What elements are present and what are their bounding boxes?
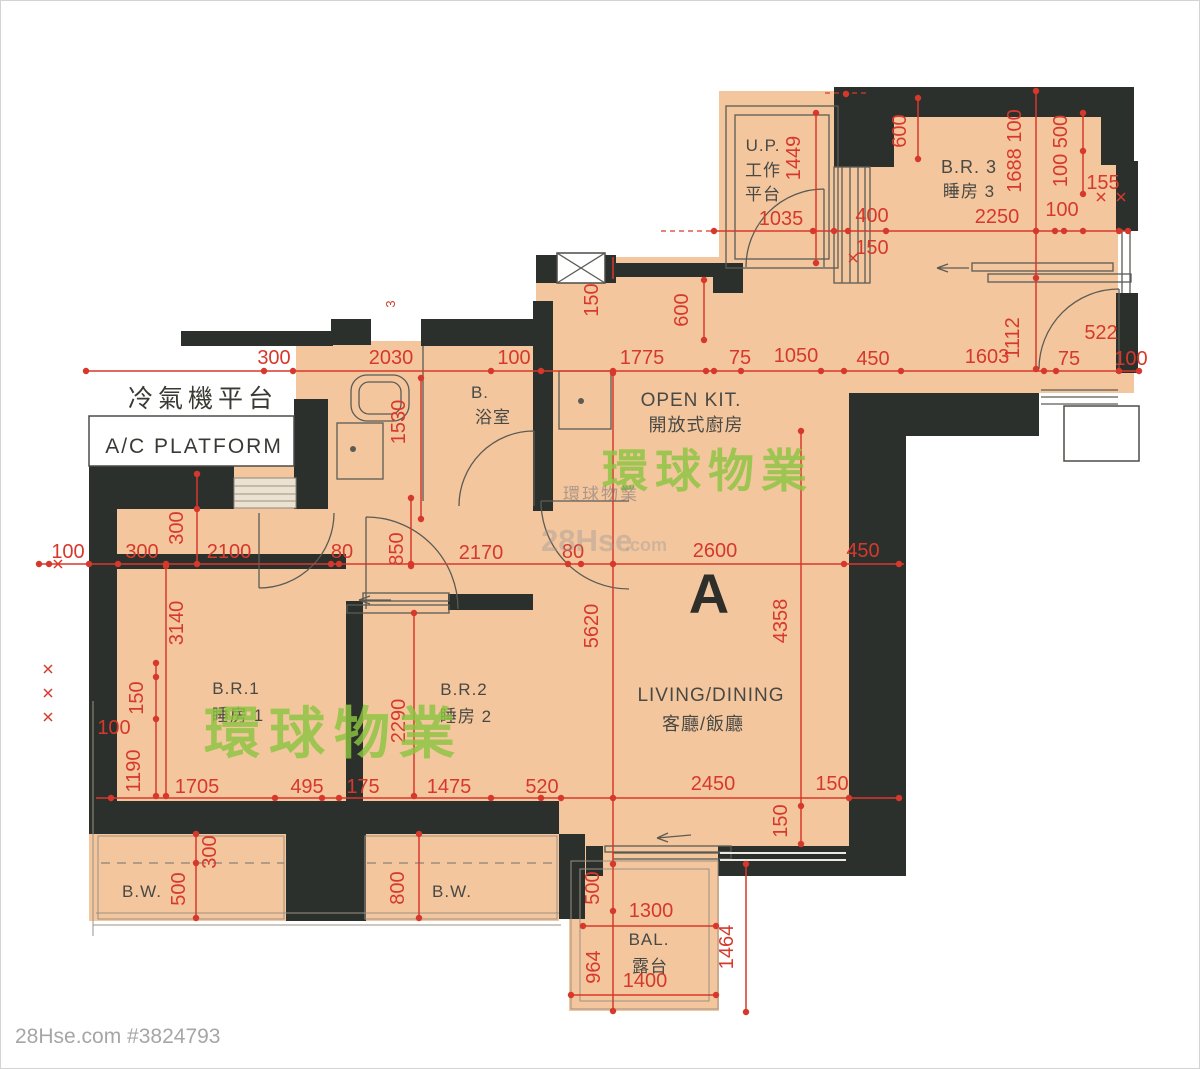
room-label-br3: B.R. 3 bbox=[941, 157, 997, 177]
dim-label: 1050 bbox=[774, 345, 819, 367]
dim-tick bbox=[411, 793, 417, 799]
dim-cross-tick bbox=[44, 713, 52, 721]
dim-label: 500 bbox=[582, 871, 604, 904]
dim-tick bbox=[1080, 228, 1086, 234]
dim-tick bbox=[153, 660, 159, 666]
dim-tick bbox=[610, 795, 616, 801]
dim-tick bbox=[610, 908, 616, 914]
dim-label: 80 bbox=[331, 541, 353, 563]
dim-tick bbox=[1033, 228, 1039, 234]
dim-label: 100 bbox=[497, 347, 530, 369]
dim-label: 150 bbox=[770, 804, 792, 837]
dim-tick bbox=[898, 368, 904, 374]
watermark-brand-small: 環球物業 bbox=[563, 485, 639, 504]
dim-tick bbox=[915, 156, 921, 162]
room-label-up: U.P. bbox=[746, 136, 781, 155]
dim-tick bbox=[883, 228, 889, 234]
dim-tick bbox=[163, 793, 169, 799]
room-label-br2: B.R.2 bbox=[440, 680, 488, 699]
dim-tick bbox=[193, 915, 199, 921]
dim-label: 2600 bbox=[693, 540, 738, 562]
dim-label: 2100 bbox=[207, 541, 252, 563]
dim-tick bbox=[610, 1008, 616, 1014]
dim-tick bbox=[418, 516, 424, 522]
dim-tick bbox=[843, 91, 849, 97]
dim-tick bbox=[1033, 366, 1039, 372]
dim-label: 100 bbox=[1114, 348, 1147, 370]
room-label-balcony: 露台 bbox=[632, 957, 668, 976]
dim-label: 800 bbox=[387, 871, 409, 904]
dim-tick bbox=[711, 228, 717, 234]
room-label-br1: B.R.1 bbox=[212, 679, 260, 698]
dim-tick bbox=[701, 337, 707, 343]
dim-tick bbox=[408, 495, 414, 501]
dim-label: 75 bbox=[1058, 348, 1080, 370]
dim-tick bbox=[36, 561, 42, 567]
room-label-bw-left: B.W. bbox=[122, 882, 162, 901]
room-label-living: 客廳/飯廳 bbox=[662, 714, 744, 734]
dim-tick bbox=[488, 368, 494, 374]
dim-label: 1190 bbox=[123, 749, 145, 792]
dim-tick bbox=[1125, 228, 1131, 234]
footer-listing-id: 28Hse.com #3824793 bbox=[15, 1025, 220, 1048]
dim-tick bbox=[153, 793, 159, 799]
dim-tick bbox=[194, 471, 200, 477]
dim-label: 100 bbox=[1045, 199, 1078, 221]
dim-tick bbox=[408, 563, 414, 569]
dim-tick bbox=[810, 228, 816, 234]
dim-label: 2170 bbox=[459, 542, 504, 564]
dim-tick bbox=[108, 795, 114, 801]
dim-label: 1475 bbox=[427, 776, 472, 798]
dim-cross-tick bbox=[44, 665, 52, 673]
dim-tick bbox=[418, 375, 424, 381]
dim-tick bbox=[194, 506, 200, 512]
dim-label: 150 bbox=[855, 237, 888, 259]
dim-tick bbox=[1033, 88, 1039, 94]
dim-tick bbox=[845, 228, 851, 234]
watermark-site-tld: .com bbox=[625, 535, 667, 555]
floorplan-page: 3002030100177575105045016037510011125221… bbox=[0, 0, 1200, 1069]
room-label-br3: 睡房 3 bbox=[943, 182, 995, 201]
dim-label: 1688 100 bbox=[1004, 109, 1026, 192]
dim-tick bbox=[743, 1009, 749, 1015]
dim-tick bbox=[115, 561, 121, 567]
dim-tick bbox=[538, 368, 544, 374]
dim-tick bbox=[1041, 368, 1047, 374]
dim-label: 1035 bbox=[759, 208, 804, 230]
dim-tick bbox=[798, 428, 804, 434]
room-label-up: 工作 bbox=[745, 161, 781, 180]
dim-tick bbox=[896, 561, 902, 567]
dim-label: 150 bbox=[815, 773, 848, 795]
dim-label: 600 bbox=[671, 293, 693, 326]
dim-tick bbox=[1033, 275, 1039, 281]
room-label-bath: B. bbox=[471, 383, 489, 402]
dim-tick bbox=[703, 368, 709, 374]
dim-tick bbox=[1116, 228, 1122, 234]
dim-tick bbox=[1080, 148, 1086, 154]
dim-tick bbox=[416, 831, 422, 837]
dim-label: 1705 bbox=[175, 776, 220, 798]
room-label-bath: 浴室 bbox=[475, 408, 511, 427]
dim-tick bbox=[610, 861, 616, 867]
dim-tick bbox=[290, 368, 296, 374]
room-label-balcony: BAL. bbox=[629, 930, 670, 949]
unit-label: A bbox=[689, 562, 729, 625]
dim-tick bbox=[153, 716, 159, 722]
dim-label: 450 bbox=[856, 348, 889, 370]
dim-tick bbox=[610, 561, 616, 567]
dim-tick bbox=[1080, 191, 1086, 197]
dim-tick bbox=[841, 368, 847, 374]
dim-tick bbox=[610, 370, 616, 376]
dim-label: 3140 bbox=[166, 601, 188, 646]
dim-tick bbox=[743, 861, 749, 867]
dim-label: 520 bbox=[525, 776, 558, 798]
dim-label: 1449 bbox=[783, 136, 805, 181]
dim-tick bbox=[813, 260, 819, 266]
dim-label: 500 bbox=[168, 872, 190, 905]
dim-tick bbox=[1061, 228, 1067, 234]
dim-tick bbox=[488, 795, 494, 801]
dim-label: 5620 bbox=[581, 604, 603, 649]
dim-label: 850 bbox=[386, 532, 408, 565]
dim-label: 100 500 bbox=[1050, 115, 1072, 187]
dim-label: 100 bbox=[97, 717, 130, 739]
dim-tick bbox=[896, 795, 902, 801]
dim-label: 300 bbox=[166, 511, 188, 544]
dim-label: 300 bbox=[125, 541, 158, 563]
room-label-living: LIVING/DINING bbox=[637, 685, 784, 706]
floor-plan-svg: 3002030100177575105045016037510011125221… bbox=[1, 1, 1199, 1068]
dim-label: 75 bbox=[729, 347, 751, 369]
dim-tick bbox=[272, 795, 278, 801]
dim-tick bbox=[336, 795, 342, 801]
dim-label: 1530 bbox=[388, 400, 410, 445]
dim-label: 3 bbox=[383, 300, 398, 307]
dim-tick bbox=[915, 95, 921, 101]
dim-tick bbox=[411, 610, 417, 616]
dim-tick bbox=[798, 803, 804, 809]
dim-tick bbox=[713, 992, 719, 998]
dim-label: 1775 bbox=[620, 347, 665, 369]
dim-tick bbox=[1052, 228, 1058, 234]
dim-label: 300 bbox=[199, 835, 221, 868]
dim-tick bbox=[153, 674, 159, 680]
dim-label: 4358 bbox=[770, 599, 792, 644]
dim-tick bbox=[818, 368, 824, 374]
dim-label: 600 bbox=[889, 114, 911, 147]
dim-tick bbox=[831, 228, 837, 234]
dim-tick bbox=[813, 110, 819, 116]
dim-label: 1112 bbox=[1002, 317, 1024, 359]
room-label-kitchen: 開放式廚房 bbox=[649, 414, 744, 435]
dim-tick bbox=[86, 561, 92, 567]
watermark-brand: 環球物業 bbox=[204, 702, 464, 765]
dim-label: 175 bbox=[346, 776, 379, 798]
room-label-kitchen: OPEN KIT. bbox=[641, 390, 742, 411]
window-sill bbox=[234, 478, 296, 508]
dim-cross-tick bbox=[44, 689, 52, 697]
watermark-site: 28Hse bbox=[541, 523, 632, 558]
dim-label: 964 bbox=[583, 950, 605, 983]
room-label-ac: A/C PLATFORM bbox=[105, 435, 283, 458]
dim-tick bbox=[798, 841, 804, 847]
room-label-bw-right: B.W. bbox=[432, 882, 472, 901]
dim-tick bbox=[194, 561, 200, 567]
dim-label: 495 bbox=[290, 776, 323, 798]
dim-label: 150 bbox=[126, 681, 148, 714]
dim-label: 2030 bbox=[369, 347, 414, 369]
dim-label: 2450 bbox=[691, 773, 736, 795]
dim-label: 100 bbox=[51, 541, 84, 563]
dim-tick bbox=[580, 923, 586, 929]
dim-label: 1300 bbox=[629, 900, 674, 922]
room-label-up: 平台 bbox=[745, 185, 781, 204]
dim-tick bbox=[163, 563, 169, 569]
dim-label: 522 bbox=[1084, 322, 1117, 344]
dim-tick bbox=[846, 795, 852, 801]
dim-tick bbox=[701, 277, 707, 283]
dim-tick bbox=[558, 795, 564, 801]
dim-tick bbox=[83, 368, 89, 374]
dim-label: 155 bbox=[1086, 172, 1119, 194]
room-label-ac: 冷氣機平台 bbox=[128, 385, 278, 413]
dim-label: 150 bbox=[581, 283, 603, 316]
dim-label: 450 bbox=[846, 540, 879, 562]
dim-tick bbox=[568, 992, 574, 998]
dim-tick bbox=[1080, 110, 1086, 116]
dim-tick bbox=[416, 915, 422, 921]
dim-label: 1464 bbox=[716, 925, 738, 970]
dim-label: 2250 bbox=[975, 206, 1020, 228]
dim-label: 300 bbox=[257, 347, 290, 369]
dim-label: 400 bbox=[855, 205, 888, 227]
dim-tick bbox=[711, 368, 717, 374]
